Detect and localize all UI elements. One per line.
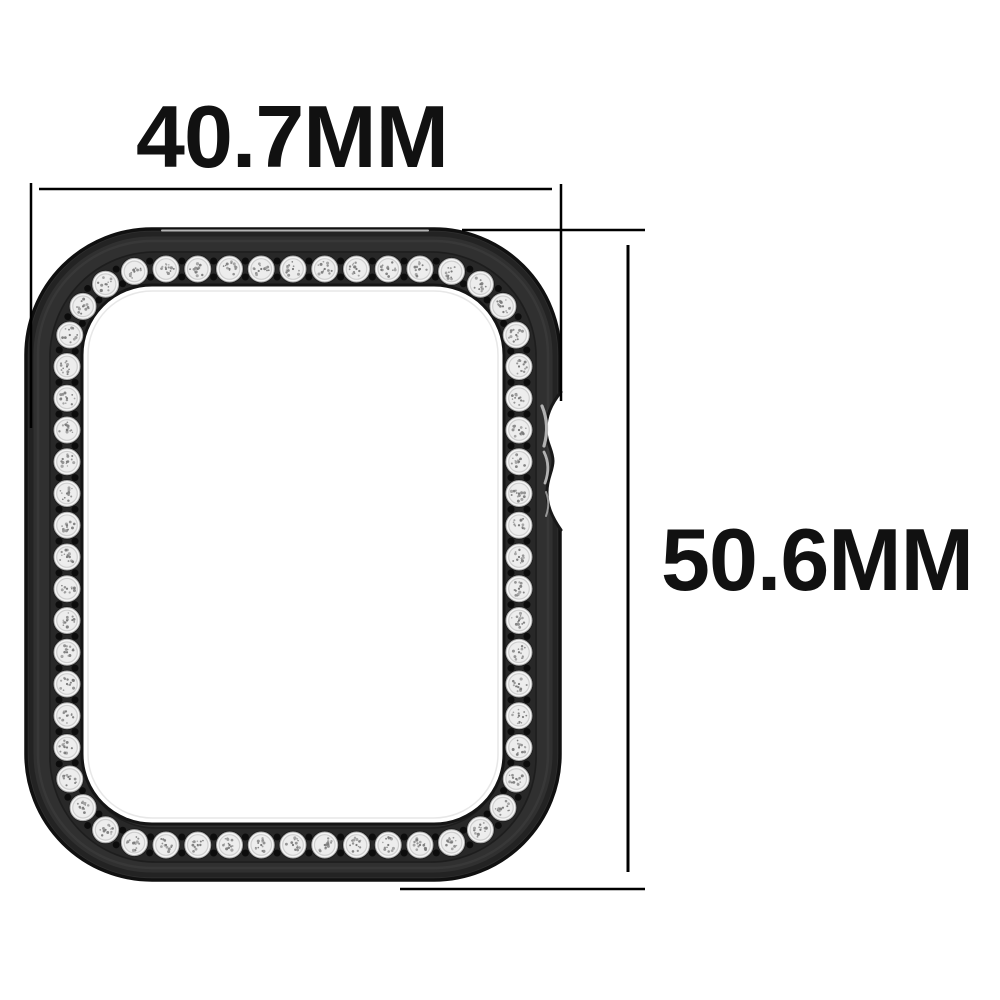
- gap-dot: [71, 538, 78, 545]
- gap-dot: [500, 787, 507, 794]
- stone-facet-speckle: [422, 264, 424, 266]
- stone-facet-speckle: [231, 839, 234, 842]
- stone-facet-speckle: [513, 523, 515, 525]
- stone-facet-speckle: [287, 274, 290, 277]
- stone-facet-speckle: [353, 263, 355, 265]
- stone-facet-speckle: [505, 310, 507, 312]
- stone-facet-speckle: [226, 838, 229, 841]
- stone-facet-speckle: [129, 839, 131, 841]
- stone-facet-speckle: [161, 266, 163, 268]
- stone-facet-speckle: [512, 458, 513, 459]
- stone-facet-speckle: [502, 311, 504, 313]
- stone-facet-speckle: [511, 494, 513, 496]
- stone-facet-speckle: [524, 647, 526, 649]
- stone-facet-speckle: [69, 591, 71, 593]
- gap-dot: [210, 850, 217, 857]
- stone-facet-speckle: [71, 394, 73, 396]
- stone-facet-speckle: [60, 490, 62, 492]
- stone-facet-speckle: [415, 839, 418, 842]
- stone-facet-speckle: [478, 826, 480, 828]
- stone-facet-speckle: [391, 849, 394, 852]
- stone-facet-speckle: [415, 848, 418, 851]
- stone-facet-speckle: [507, 802, 510, 805]
- stone-facet-speckle: [352, 839, 355, 842]
- stone-facet-speckle: [87, 804, 90, 807]
- stone-facet-speckle: [231, 845, 233, 847]
- stone-facet-speckle: [478, 288, 480, 290]
- stone-facet-speckle: [518, 648, 520, 650]
- stone-facet-speckle: [63, 644, 66, 647]
- stone-facet-speckle: [326, 264, 328, 266]
- stone-facet-speckle: [59, 398, 62, 401]
- stone-facet-speckle: [70, 429, 72, 431]
- stone-facet-speckle: [525, 428, 526, 429]
- gap-dot: [495, 822, 502, 829]
- stone-facet-speckle: [61, 492, 63, 494]
- gap-dot: [524, 538, 531, 545]
- gap-dot: [64, 794, 71, 801]
- stone-facet-speckle: [135, 267, 137, 269]
- stone-facet-speckle: [71, 747, 73, 749]
- stone-facet-speckle: [521, 330, 524, 333]
- rhinestone: [53, 479, 82, 508]
- stone-facet-speckle: [67, 465, 68, 466]
- stone-facet-speckle: [79, 807, 81, 809]
- stone-facet-speckle: [110, 831, 112, 833]
- stone-facet-speckle: [511, 714, 514, 717]
- stone-facet-speckle: [516, 595, 518, 597]
- stone-facet-speckle: [67, 499, 69, 501]
- gap-dot: [524, 601, 531, 608]
- stone-facet-speckle: [416, 842, 418, 844]
- stone-facet-speckle: [268, 269, 270, 271]
- stone-facet-speckle: [73, 586, 76, 589]
- stone-facet-speckle: [60, 364, 63, 367]
- stone-facet-speckle: [521, 617, 524, 620]
- stone-facet-speckle: [80, 313, 82, 315]
- rhinestone: [279, 831, 308, 860]
- gap-dot: [337, 834, 344, 841]
- gap-dot: [523, 760, 530, 767]
- rhinestone: [505, 511, 534, 540]
- stone-facet-speckle: [516, 362, 518, 364]
- stone-facet-speckle: [296, 838, 298, 840]
- stone-facet-speckle: [72, 461, 75, 464]
- stone-facet-speckle: [61, 554, 63, 556]
- stone-facet-speckle: [352, 264, 354, 266]
- rhinestone: [53, 511, 82, 540]
- stone-facet-speckle: [61, 551, 63, 553]
- stone-facet-speckle: [69, 775, 71, 777]
- stone-facet-speckle: [136, 836, 138, 838]
- stone-facet-speckle: [61, 461, 64, 464]
- stone-facet-speckle: [318, 264, 320, 266]
- stone-facet-speckle: [226, 267, 229, 270]
- stone-facet-speckle: [67, 373, 69, 375]
- stone-facet-speckle: [63, 689, 65, 691]
- stone-facet-speckle: [67, 529, 69, 531]
- stone-facet-speckle: [515, 685, 517, 687]
- stone-facet-speckle: [450, 276, 452, 278]
- stone-facet-speckle: [453, 845, 456, 848]
- stone-facet-speckle: [519, 585, 522, 588]
- rhinestone: [53, 733, 82, 762]
- rhinestone: [152, 255, 181, 284]
- stone-facet-speckle: [171, 844, 173, 846]
- stone-facet-speckle: [518, 626, 521, 629]
- stone-facet-speckle: [100, 289, 103, 292]
- rhinestone: [53, 352, 82, 381]
- stone-facet-speckle: [511, 774, 514, 777]
- stone-facet-speckle: [330, 840, 332, 842]
- stone-facet-speckle: [474, 832, 477, 835]
- gap-dot: [55, 442, 62, 449]
- gap-dot: [113, 841, 120, 848]
- stone-facet-speckle: [66, 455, 69, 458]
- stone-facet-speckle: [480, 827, 482, 829]
- stone-facet-speckle: [61, 525, 62, 526]
- stone-facet-speckle: [233, 262, 236, 265]
- stone-facet-speckle: [516, 615, 519, 618]
- stone-facet-speckle: [520, 519, 523, 522]
- stone-facet-speckle: [331, 270, 333, 272]
- gap-dot: [84, 285, 91, 292]
- stone-facet-speckle: [511, 463, 513, 465]
- stone-facet-speckle: [517, 360, 519, 362]
- stone-facet-speckle: [326, 262, 329, 265]
- stone-facet-speckle: [514, 435, 517, 438]
- stone-facet-speckle: [523, 750, 526, 753]
- gap-dot: [242, 834, 249, 841]
- stone-facet-speckle: [385, 838, 387, 840]
- stone-facet-speckle: [257, 842, 259, 844]
- gap-dot: [55, 601, 62, 608]
- stone-facet-speckle: [513, 340, 515, 342]
- stone-facet-speckle: [65, 710, 67, 712]
- stone-facet-speckle: [69, 521, 72, 524]
- stone-facet-speckle: [87, 306, 90, 309]
- gap-dot: [242, 258, 249, 265]
- stone-facet-speckle: [424, 848, 427, 851]
- stone-facet-speckle: [455, 840, 456, 841]
- stone-facet-speckle: [522, 557, 524, 559]
- stone-facet-speckle: [68, 486, 71, 489]
- stone-facet-speckle: [85, 802, 87, 804]
- stone-facet-speckle: [71, 588, 73, 590]
- stone-facet-speckle: [498, 810, 501, 813]
- stone-facet-speckle: [62, 498, 64, 500]
- stone-facet-speckle: [168, 848, 171, 851]
- stone-facet-speckle: [296, 847, 298, 849]
- gap-dot: [515, 313, 522, 320]
- stone-facet-speckle: [521, 648, 524, 651]
- stone-facet-speckle: [65, 328, 67, 330]
- gap-dot: [55, 665, 62, 672]
- gap-dot: [401, 258, 408, 265]
- rhinestone: [406, 831, 435, 860]
- gap-dot: [524, 665, 531, 672]
- stone-facet-speckle: [509, 774, 511, 776]
- stone-facet-speckle: [451, 848, 454, 851]
- stone-facet-speckle: [199, 844, 201, 846]
- stone-facet-speckle: [327, 845, 330, 848]
- stone-facet-speckle: [166, 264, 168, 266]
- rhinestone: [489, 793, 518, 822]
- stone-facet-speckle: [64, 746, 66, 748]
- stone-facet-speckle: [72, 716, 74, 718]
- stone-facet-speckle: [101, 834, 103, 836]
- stone-facet-speckle: [453, 837, 455, 839]
- stone-facet-speckle: [513, 682, 515, 684]
- rhinestone: [502, 321, 531, 350]
- stone-facet-speckle: [167, 850, 170, 853]
- stone-facet-speckle: [526, 366, 528, 368]
- gap-dot: [55, 506, 62, 513]
- stone-facet-speckle: [349, 265, 351, 267]
- stone-facet-speckle: [195, 848, 198, 851]
- stone-facet-speckle: [84, 308, 87, 311]
- gap-dot: [305, 834, 312, 841]
- stone-facet-speckle: [521, 751, 524, 754]
- stone-facet-speckle: [320, 263, 323, 266]
- stone-facet-speckle: [62, 371, 64, 373]
- stone-facet-speckle: [64, 553, 66, 555]
- gap-dot: [71, 728, 78, 735]
- gap-dot: [460, 280, 467, 287]
- stone-facet-speckle: [387, 850, 390, 853]
- stone-facet-speckle: [516, 492, 518, 494]
- gap-dot: [337, 258, 344, 265]
- stone-facet-speckle: [170, 266, 173, 269]
- stone-facet-speckle: [64, 497, 66, 499]
- rhinestone: [279, 255, 308, 284]
- gap-dot: [524, 696, 531, 703]
- stone-facet-speckle: [509, 335, 512, 338]
- stone-facet-speckle: [257, 847, 259, 849]
- stone-facet-speckle: [518, 581, 520, 583]
- stone-facet-speckle: [61, 588, 64, 591]
- stone-facet-speckle: [416, 275, 419, 278]
- stone-facet-speckle: [327, 840, 329, 842]
- stone-facet-speckle: [58, 717, 60, 719]
- stone-facet-speckle: [78, 307, 81, 310]
- stone-facet-speckle: [166, 846, 169, 849]
- stone-facet-speckle: [512, 650, 515, 653]
- gap-dot: [508, 569, 515, 576]
- rhinestone: [53, 416, 82, 445]
- stone-facet-speckle: [100, 284, 103, 287]
- stone-facet-speckle: [509, 307, 510, 308]
- stone-facet-speckle: [359, 846, 361, 848]
- gap-dot: [178, 274, 185, 281]
- stone-facet-speckle: [510, 490, 513, 493]
- stone-facet-speckle: [517, 690, 519, 692]
- rhinestone: [489, 292, 518, 321]
- rhinestone: [342, 831, 371, 860]
- stone-facet-speckle: [522, 523, 525, 526]
- stone-facet-speckle: [519, 743, 522, 746]
- rhinestone: [505, 416, 534, 445]
- rhinestone: [215, 831, 244, 860]
- rhinestone: [53, 447, 82, 476]
- rhinestone: [437, 828, 466, 857]
- gap-dot: [508, 633, 515, 640]
- stone-facet-speckle: [526, 684, 528, 686]
- stone-facet-speckle: [480, 290, 482, 292]
- rhinestone: [247, 831, 276, 860]
- rhinestone: [183, 831, 212, 860]
- gap-dot: [433, 258, 440, 265]
- gap-dot: [55, 728, 62, 735]
- stone-facet-speckle: [296, 849, 299, 852]
- stone-facet-speckle: [71, 455, 73, 457]
- stone-facet-speckle: [474, 287, 476, 289]
- stone-facet-speckle: [290, 841, 293, 844]
- gap-dot: [56, 760, 63, 767]
- stone-facet-speckle: [327, 269, 330, 272]
- stone-facet-speckle: [72, 327, 74, 329]
- gap-dot: [337, 274, 344, 281]
- stone-facet-speckle: [513, 684, 515, 686]
- stone-facet-speckle: [196, 262, 199, 265]
- gap-dot: [524, 569, 531, 576]
- gap-dot: [508, 665, 515, 672]
- stone-facet-speckle: [71, 459, 73, 461]
- width-dimension-label: 40.7MM: [136, 93, 448, 181]
- stone-facet-speckle: [419, 841, 422, 844]
- stone-facet-speckle: [194, 846, 195, 847]
- stone-facet-speckle: [413, 841, 415, 843]
- stone-facet-speckle: [66, 741, 69, 744]
- rhinestone: [466, 270, 495, 299]
- stone-facet-speckle: [354, 262, 356, 264]
- stone-facet-speckle: [447, 276, 449, 278]
- stone-facet-speckle: [160, 845, 163, 848]
- stone-facet-speckle: [70, 495, 72, 497]
- stone-facet-speckle: [230, 262, 232, 264]
- stone-facet-speckle: [484, 830, 485, 831]
- stone-facet-speckle: [136, 269, 139, 272]
- stone-facet-speckle: [288, 264, 290, 266]
- stone-facet-speckle: [349, 844, 351, 846]
- stone-facet-speckle: [234, 266, 237, 269]
- stone-facet-speckle: [110, 277, 113, 280]
- stone-facet-speckle: [415, 269, 417, 271]
- stone-facet-speckle: [523, 464, 526, 467]
- stone-facet-speckle: [263, 842, 266, 845]
- stone-facet-speckle: [318, 272, 321, 275]
- stone-facet-speckle: [69, 646, 71, 648]
- gap-dot: [508, 411, 515, 418]
- stone-facet-speckle: [517, 752, 519, 754]
- rhinestone: [505, 638, 534, 667]
- gap-dot: [71, 442, 78, 449]
- stone-facet-speckle: [167, 272, 170, 275]
- stone-facet-speckle: [447, 267, 449, 269]
- stone-facet-speckle: [135, 847, 137, 849]
- stone-facet-speckle: [72, 616, 74, 618]
- stone-facet-speckle: [73, 621, 75, 623]
- stone-facet-speckle: [505, 299, 507, 301]
- gap-dot: [242, 850, 249, 857]
- stone-facet-speckle: [511, 617, 512, 618]
- gap-dot: [71, 569, 78, 576]
- stone-facet-speckle: [192, 841, 194, 843]
- stone-facet-speckle: [126, 840, 129, 843]
- stone-facet-speckle: [422, 844, 425, 847]
- gap-dot: [71, 696, 78, 703]
- stone-facet-speckle: [475, 277, 478, 280]
- stone-facet-speckle: [506, 805, 508, 807]
- gap-dot: [274, 274, 281, 281]
- stone-facet-speckle: [69, 341, 71, 343]
- stone-facet-speckle: [107, 824, 110, 827]
- gap-dot: [508, 506, 515, 513]
- stone-facet-speckle: [67, 655, 69, 657]
- stone-facet-speckle: [498, 304, 500, 306]
- stone-facet-speckle: [65, 402, 67, 404]
- gap-dot: [71, 474, 78, 481]
- stone-facet-speckle: [111, 827, 114, 830]
- stone-facet-speckle: [358, 846, 359, 847]
- stone-facet-speckle: [62, 424, 64, 426]
- stone-facet-speckle: [73, 649, 75, 651]
- stone-facet-speckle: [349, 268, 351, 270]
- stone-facet-speckle: [295, 842, 298, 845]
- stone-facet-speckle: [506, 312, 508, 314]
- stone-facet-speckle: [291, 261, 293, 263]
- stone-facet-speckle: [513, 490, 516, 493]
- stone-facet-speckle: [521, 722, 523, 724]
- gap-dot: [55, 474, 62, 481]
- gap-dot: [369, 850, 376, 857]
- stone-facet-speckle: [61, 393, 64, 396]
- stone-facet-speckle: [519, 433, 521, 435]
- stone-facet-speckle: [68, 368, 70, 370]
- stone-facet-speckle: [445, 272, 448, 275]
- stone-facet-speckle: [512, 748, 515, 751]
- gap-dot: [113, 266, 120, 273]
- stone-facet-speckle: [68, 612, 69, 613]
- stone-facet-speckle: [170, 270, 172, 272]
- gap-dot: [56, 347, 63, 354]
- stone-facet-speckle: [515, 590, 517, 592]
- stone-facet-speckle: [519, 688, 522, 691]
- stone-facet-speckle: [59, 559, 61, 561]
- gap-dot: [178, 850, 185, 857]
- gap-dot: [119, 827, 126, 834]
- stone-facet-speckle: [73, 589, 76, 592]
- stone-facet-speckle: [266, 270, 268, 272]
- stone-facet-speckle: [520, 399, 522, 401]
- stone-facet-speckle: [358, 275, 360, 277]
- stone-facet-speckle: [286, 266, 289, 269]
- stone-facet-speckle: [524, 368, 526, 370]
- stone-facet-speckle: [323, 270, 324, 271]
- stone-facet-speckle: [353, 265, 356, 268]
- stone-facet-speckle: [481, 285, 483, 287]
- gap-dot: [242, 274, 249, 281]
- stone-facet-speckle: [66, 678, 68, 680]
- gap-dot: [210, 258, 217, 265]
- rhinestone: [505, 352, 534, 381]
- stone-facet-speckle: [514, 397, 516, 399]
- stone-facet-speckle: [66, 625, 69, 628]
- gap-dot: [508, 442, 515, 449]
- stone-facet-speckle: [352, 842, 354, 844]
- stone-facet-speckle: [230, 849, 233, 852]
- gap-dot: [178, 834, 185, 841]
